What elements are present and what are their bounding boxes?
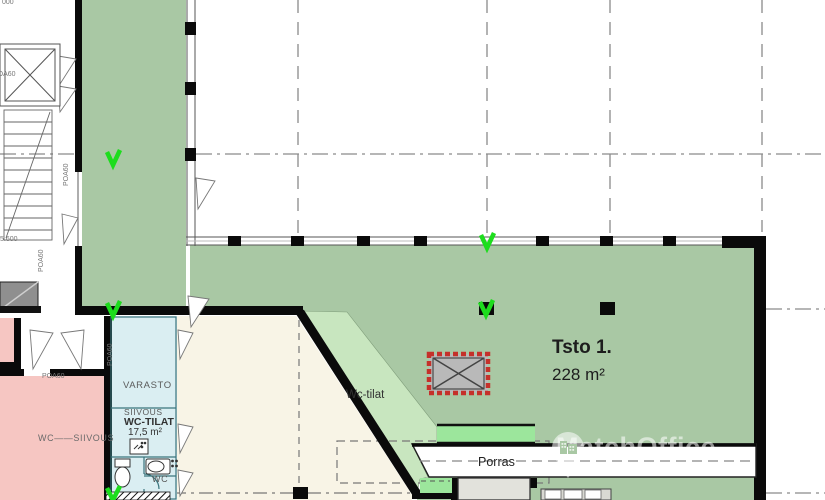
unit-name: Tsto 1. [552, 338, 612, 357]
room-label-varasto: VARASTO [123, 381, 172, 391]
watermark: MatchOffice [550, 430, 716, 463]
map-pin-building-icon [550, 430, 586, 480]
room-label-wc-tilat: WC-TILAT [124, 417, 174, 428]
door-tag-corridor: POA60 [63, 163, 70, 186]
door-tag-stair: POA60 [38, 249, 45, 272]
room-area-wc-tilat: 17,5 m² [128, 428, 162, 438]
room-label-wc: WC [152, 475, 168, 484]
reserved-box [429, 354, 488, 393]
room-label-porras: Porras [478, 456, 515, 469]
pink-room-small [0, 318, 16, 366]
door-tag-storage: POA60 [107, 343, 114, 366]
unit-area: 228 m² [552, 366, 605, 383]
room-label-wc-siivous: WC——SIIVOUS [38, 434, 114, 443]
room-label-wc-corridor: Wc-tilat [346, 390, 384, 402]
floorplan-canvas: 000 POA60 5.600 POA60 POA60 POA60 POA60 … [0, 0, 825, 500]
unit-area-left-wing [82, 0, 186, 312]
level-label-stair: 5.600 [0, 236, 18, 243]
shaft-gray-box [0, 282, 41, 313]
lift-door-tag: POA60 [0, 71, 16, 78]
level-label-top: 000 [2, 0, 14, 6]
door-tag-cleaning: POA60 [42, 373, 65, 380]
toilet-icon [115, 459, 130, 487]
floor-drain-icon [130, 439, 148, 454]
